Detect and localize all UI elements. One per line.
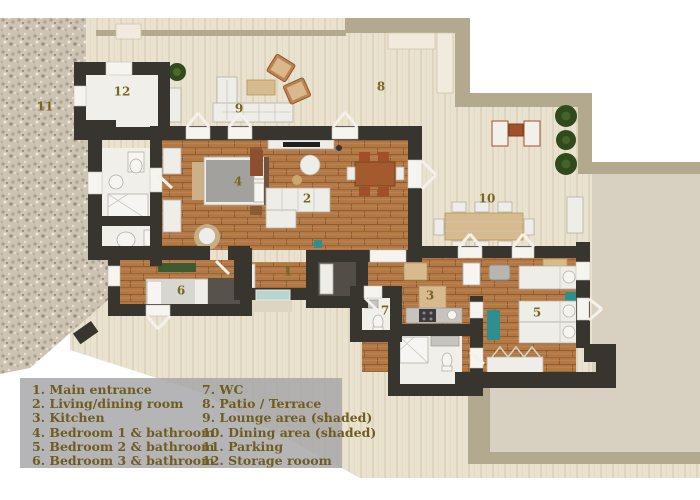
planter-box: [437, 33, 453, 93]
room-marker-8: 8: [377, 80, 385, 92]
room-marker-6: 6: [177, 284, 185, 296]
legend-item: 6. Bedroom 3 & bathroom: [32, 454, 202, 468]
legend-item: 12. Storage rooom: [202, 454, 376, 468]
legend-item: 8. Patio / Terrace: [202, 397, 376, 411]
legend-item: 2. Living/dining room: [32, 397, 202, 411]
armchair: [199, 228, 216, 245]
coffee-table: [247, 80, 275, 95]
armchair: [300, 155, 320, 175]
room-marker-10: 10: [479, 192, 496, 204]
legend-item: 11. Parking: [202, 440, 376, 454]
room-marker-2: 2: [303, 192, 311, 204]
legend-item: 4. Bedroom 1 & bathroom: [32, 426, 202, 440]
legend-column-2: 7. WC 8. Patio / Terrace 9. Lounge area …: [202, 383, 376, 468]
legend-item: 1. Main entrance: [32, 383, 202, 397]
legend-item: 10. Dining area (shaded): [202, 426, 376, 440]
wardrobe: [320, 264, 333, 294]
room-marker-12: 12: [114, 85, 131, 97]
planter-box: [116, 24, 141, 39]
wardrobe: [487, 357, 543, 374]
legend: 1. Main entrance 2. Living/dining room 3…: [20, 378, 342, 468]
entry-mat: [250, 300, 292, 312]
floor-plan-image: 1 2 3 4 5 6 7 8 9 10 11 12 1. Main entra…: [0, 0, 700, 500]
room-marker-3: 3: [426, 289, 434, 301]
legend-item: 3. Kitchen: [32, 411, 202, 425]
dining-table: [355, 162, 395, 186]
legend-item: 5. Bedroom 2 & bathroom: [32, 440, 202, 454]
room-marker-9: 9: [235, 102, 243, 114]
wardrobe: [163, 148, 181, 174]
planter-box: [388, 33, 435, 49]
room-marker-7: 7: [381, 304, 389, 316]
wardrobe: [163, 200, 181, 232]
legend-item: 7. WC: [202, 383, 376, 397]
room-marker-4: 4: [234, 175, 242, 187]
legend-item: 9. Lounge area (shaded): [202, 411, 376, 425]
dining-table: [445, 213, 523, 240]
ac-unit: [567, 197, 583, 233]
room-marker-11: 11: [37, 100, 54, 112]
legend-column-1: 1. Main entrance 2. Living/dining room 3…: [32, 383, 202, 468]
room-marker-5: 5: [533, 306, 541, 318]
room-marker-1: 1: [284, 265, 292, 277]
